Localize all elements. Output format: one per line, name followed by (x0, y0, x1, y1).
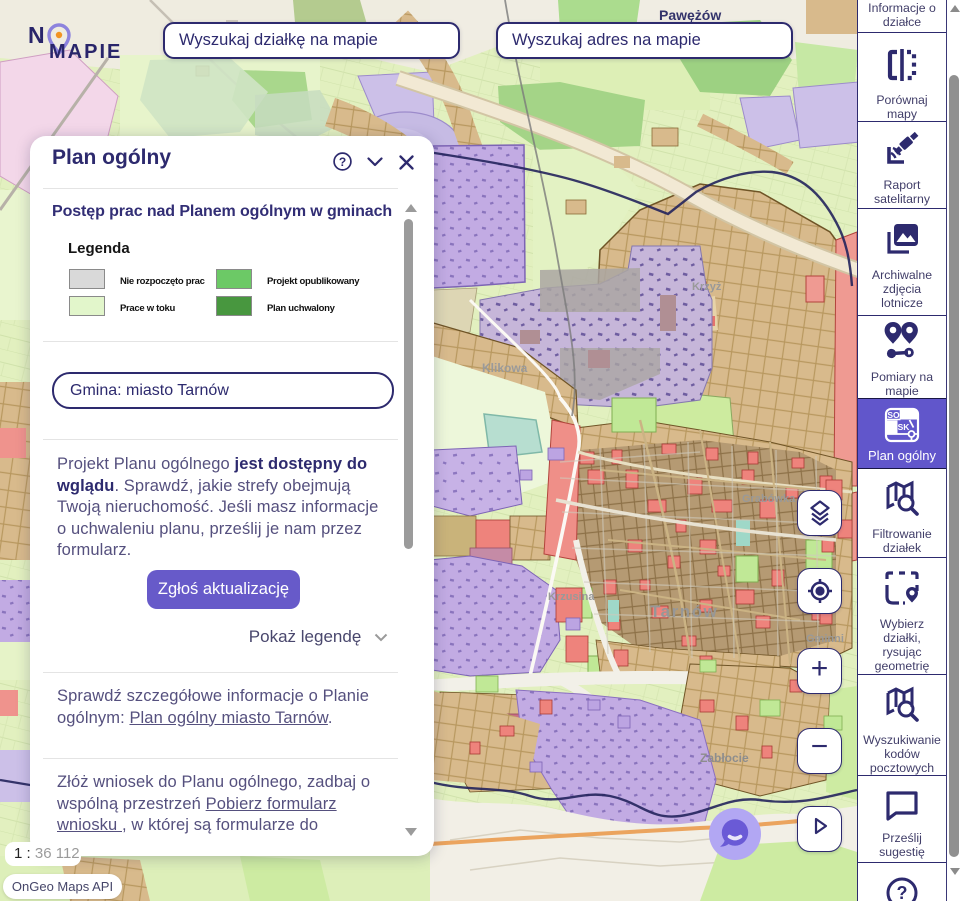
svg-text:Grabówka: Grabówka (742, 493, 796, 505)
svg-text:Zabłocie: Zabłocie (700, 751, 749, 765)
svg-text:Krzusina: Krzusina (548, 591, 595, 603)
svg-text:?: ? (897, 883, 908, 901)
svg-text:Tarnów: Tarnów (650, 602, 718, 621)
svg-text:Krzyż: Krzyż (692, 281, 722, 293)
svg-text:Pawężów: Pawężów (659, 7, 721, 23)
svg-text:Klikowa: Klikowa (482, 361, 528, 375)
svg-text:SO: SO (887, 410, 900, 420)
svg-text:SK: SK (898, 422, 911, 432)
svg-text:Gminni: Gminni (806, 633, 844, 645)
svg-text:?: ? (339, 155, 346, 169)
